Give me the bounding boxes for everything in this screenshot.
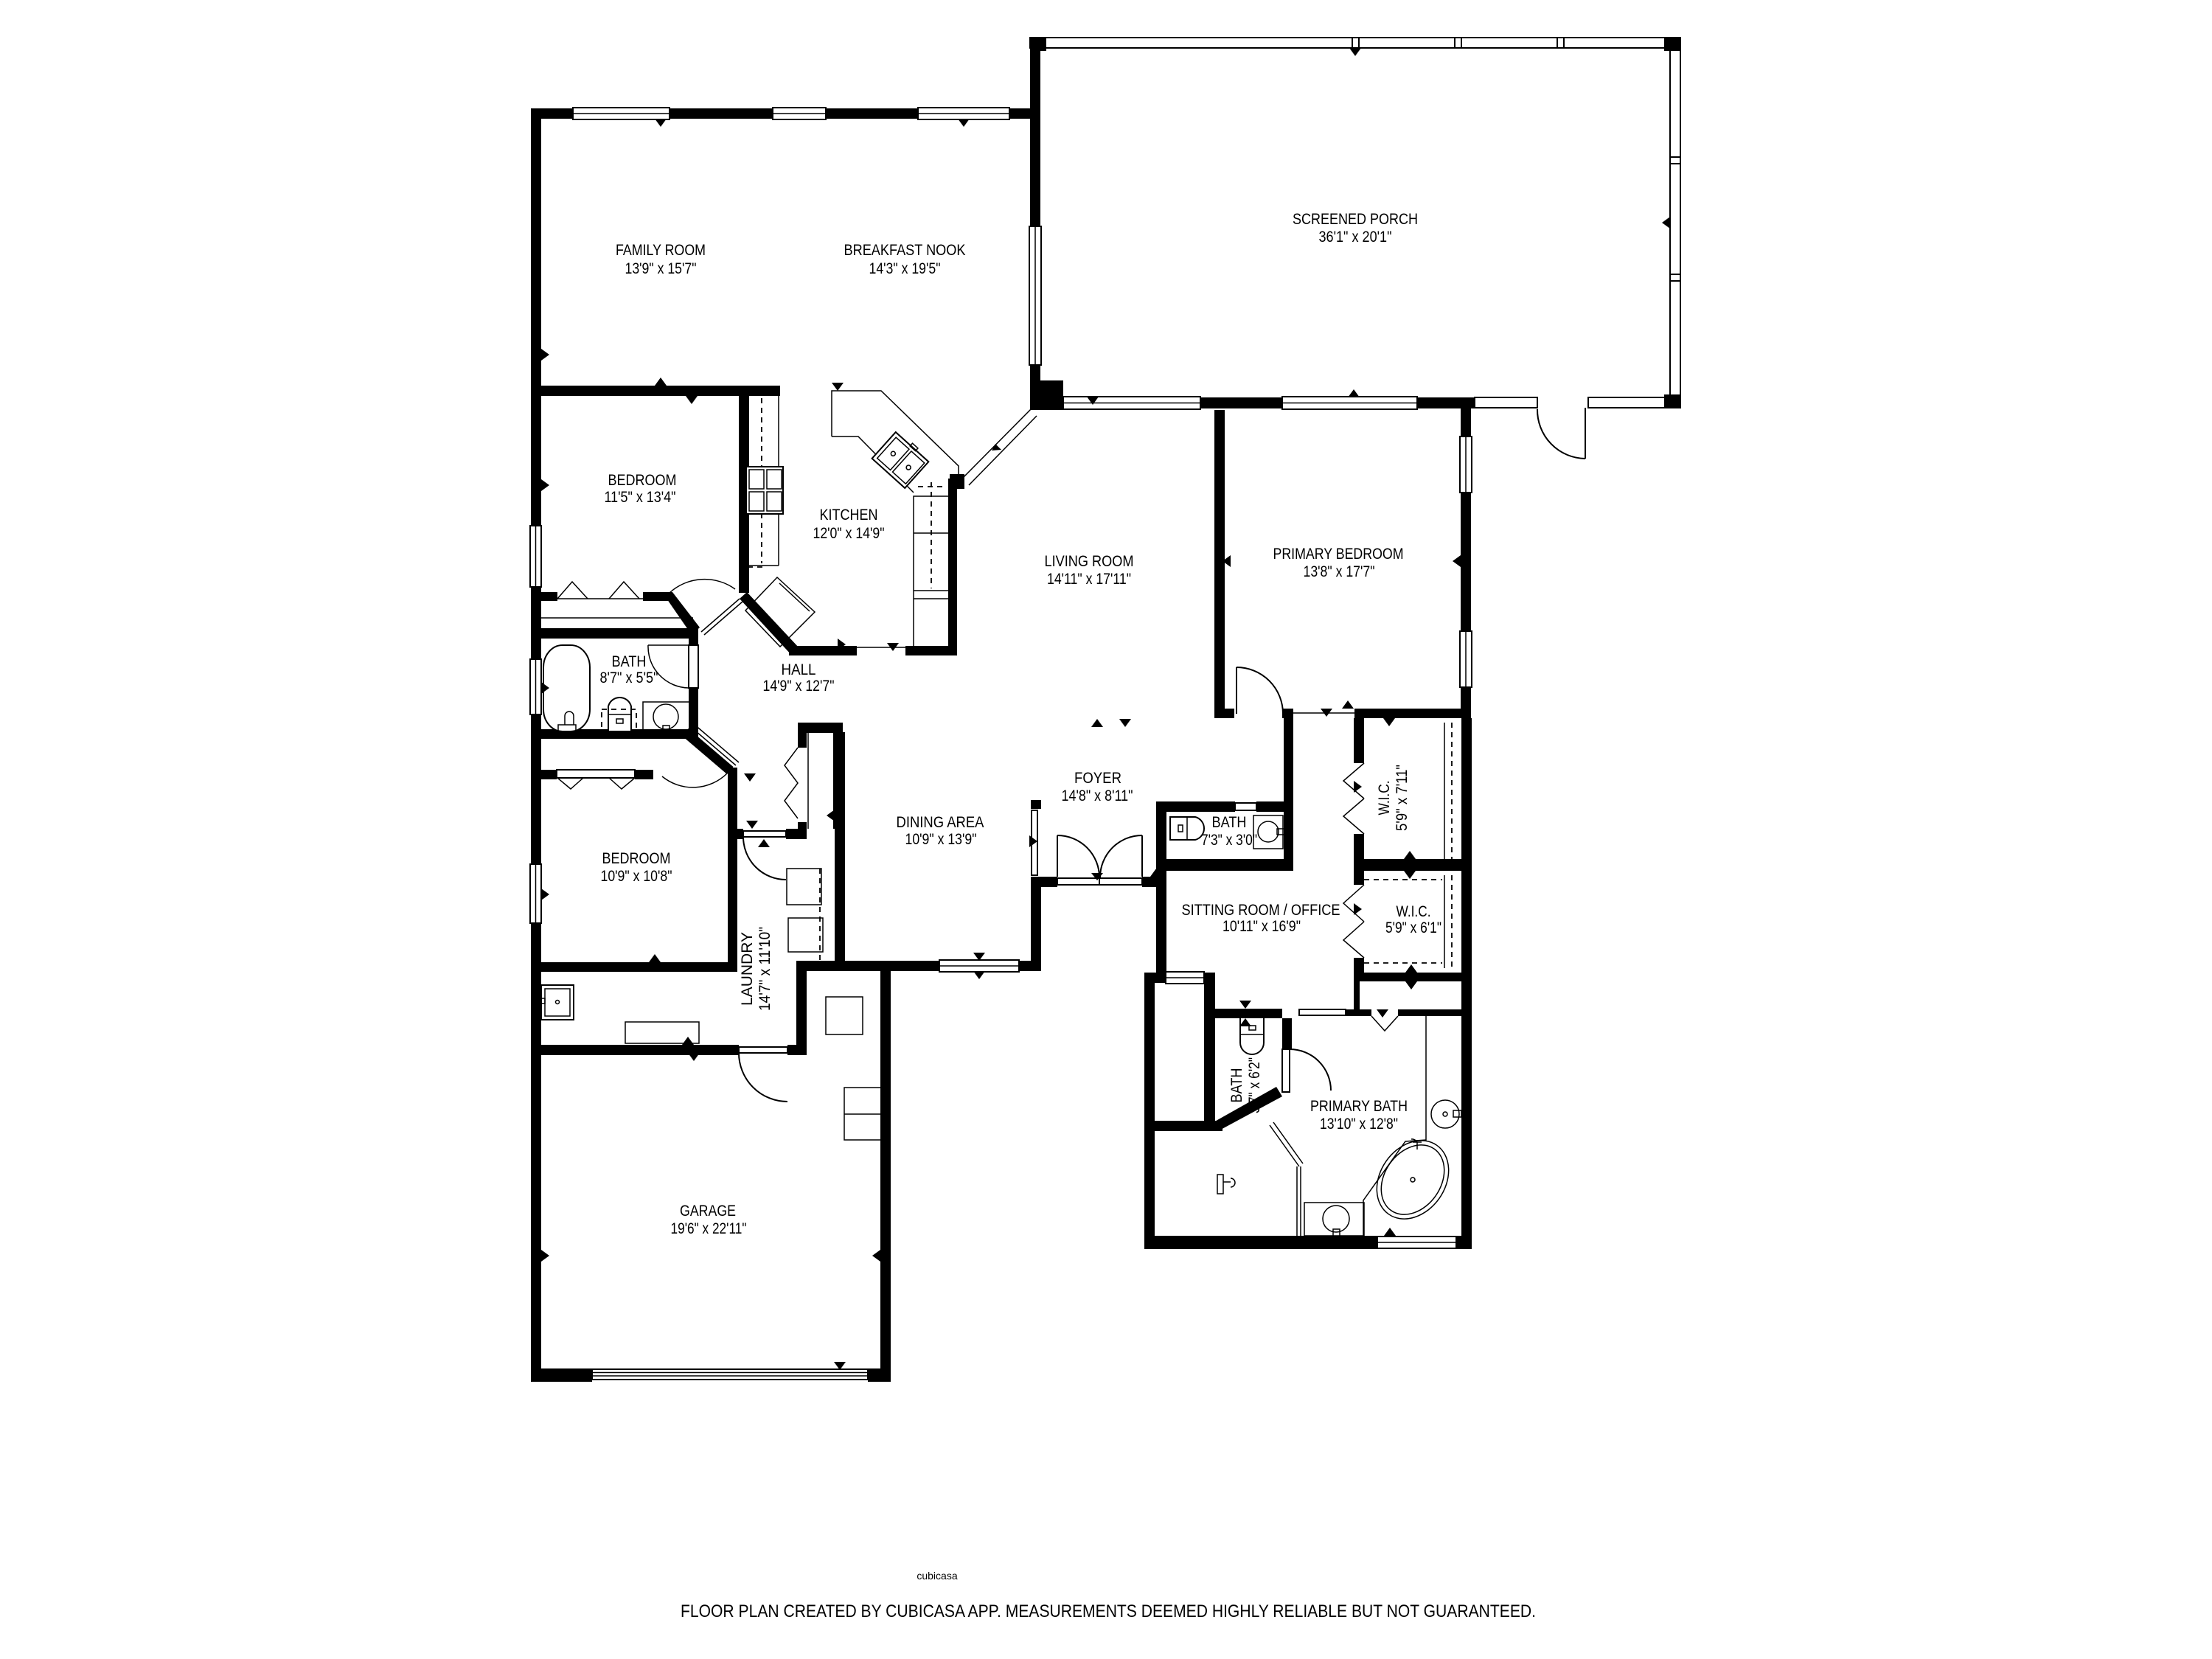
svg-text:19'6" x 22'11": 19'6" x 22'11"	[671, 1220, 747, 1237]
svg-text:13'9" x 15'7": 13'9" x 15'7"	[625, 260, 697, 277]
svg-text:HALL: HALL	[782, 661, 816, 678]
svg-text:14'11" x 17'11": 14'11" x 17'11"	[1047, 570, 1131, 588]
svg-text:14'3" x 19'5": 14'3" x 19'5"	[869, 260, 941, 277]
svg-text:FOYER: FOYER	[1074, 769, 1121, 787]
svg-text:BEDROOM: BEDROOM	[608, 471, 677, 489]
svg-text:BATH: BATH	[1228, 1068, 1245, 1103]
svg-text:W.I.C.: W.I.C.	[1375, 781, 1393, 815]
svg-text:13'8" x 17'7": 13'8" x 17'7"	[1304, 563, 1375, 580]
svg-text:SITTING ROOM / OFFICE: SITTING ROOM / OFFICE	[1182, 901, 1340, 919]
svg-text:W.I.C.: W.I.C.	[1397, 902, 1431, 920]
svg-text:36'1" x 20'1": 36'1" x 20'1"	[1319, 228, 1392, 246]
svg-text:PRIMARY BEDROOM: PRIMARY BEDROOM	[1273, 545, 1404, 563]
svg-text:14'7" x 11'10": 14'7" x 11'10"	[756, 927, 773, 1011]
svg-text:8'7" x 5'5": 8'7" x 5'5"	[600, 669, 658, 686]
svg-text:3'7" x 6'2": 3'7" x 6'2"	[1245, 1057, 1263, 1113]
svg-text:10'9" x 13'9": 10'9" x 13'9"	[905, 830, 977, 848]
svg-text:LIVING ROOM: LIVING ROOM	[1045, 552, 1134, 570]
svg-text:BEDROOM: BEDROOM	[602, 849, 671, 867]
svg-text:13'10" x 12'8": 13'10" x 12'8"	[1320, 1115, 1398, 1133]
svg-text:7'3" x 3'0": 7'3" x 3'0"	[1201, 831, 1257, 849]
svg-text:LAUNDRY: LAUNDRY	[738, 932, 756, 1006]
svg-text:cubicasa: cubicasa	[917, 1570, 957, 1582]
svg-text:5'9" x 6'1": 5'9" x 6'1"	[1385, 919, 1441, 936]
svg-text:11'5" x 13'4": 11'5" x 13'4"	[605, 488, 676, 506]
svg-text:SCREENED PORCH: SCREENED PORCH	[1293, 210, 1418, 228]
svg-text:14'9" x 12'7": 14'9" x 12'7"	[763, 677, 835, 695]
svg-text:FAMILY ROOM: FAMILY ROOM	[616, 241, 706, 259]
svg-text:BATH: BATH	[612, 653, 647, 670]
svg-text:14'8" x 8'11": 14'8" x 8'11"	[1062, 787, 1133, 804]
svg-text:BATH: BATH	[1212, 813, 1247, 831]
svg-text:12'0" x 14'9": 12'0" x 14'9"	[813, 524, 885, 542]
svg-text:GARAGE: GARAGE	[680, 1202, 736, 1220]
svg-text:10'9" x 10'8": 10'9" x 10'8"	[601, 867, 672, 885]
svg-text:FLOOR PLAN CREATED BY CUBICASA: FLOOR PLAN CREATED BY CUBICASA APP. MEAS…	[681, 1601, 1536, 1621]
svg-text:10'11" x 16'9": 10'11" x 16'9"	[1222, 917, 1301, 935]
svg-text:BREAKFAST NOOK: BREAKFAST NOOK	[844, 241, 967, 259]
svg-text:5'9" x 7'11": 5'9" x 7'11"	[1393, 765, 1411, 831]
svg-text:DINING AREA: DINING AREA	[897, 813, 985, 831]
svg-text:PRIMARY BATH: PRIMARY BATH	[1310, 1097, 1408, 1115]
svg-text:KITCHEN: KITCHEN	[820, 506, 878, 524]
